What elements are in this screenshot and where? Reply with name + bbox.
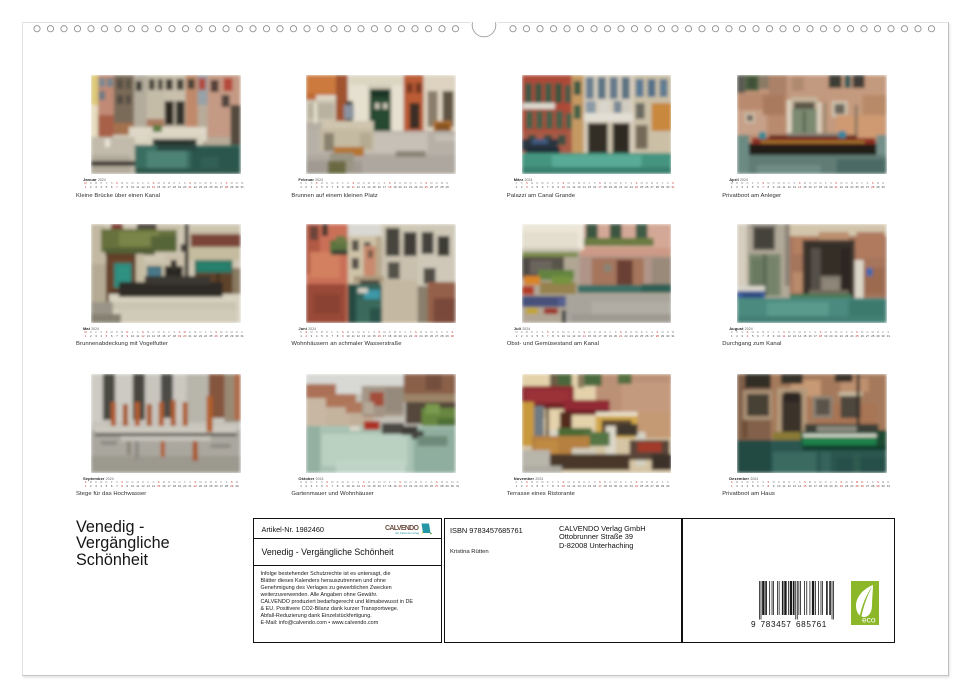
svg-text:der Kalenderverlag: der Kalenderverlag	[395, 531, 419, 535]
svg-text:eco: eco	[862, 614, 876, 624]
